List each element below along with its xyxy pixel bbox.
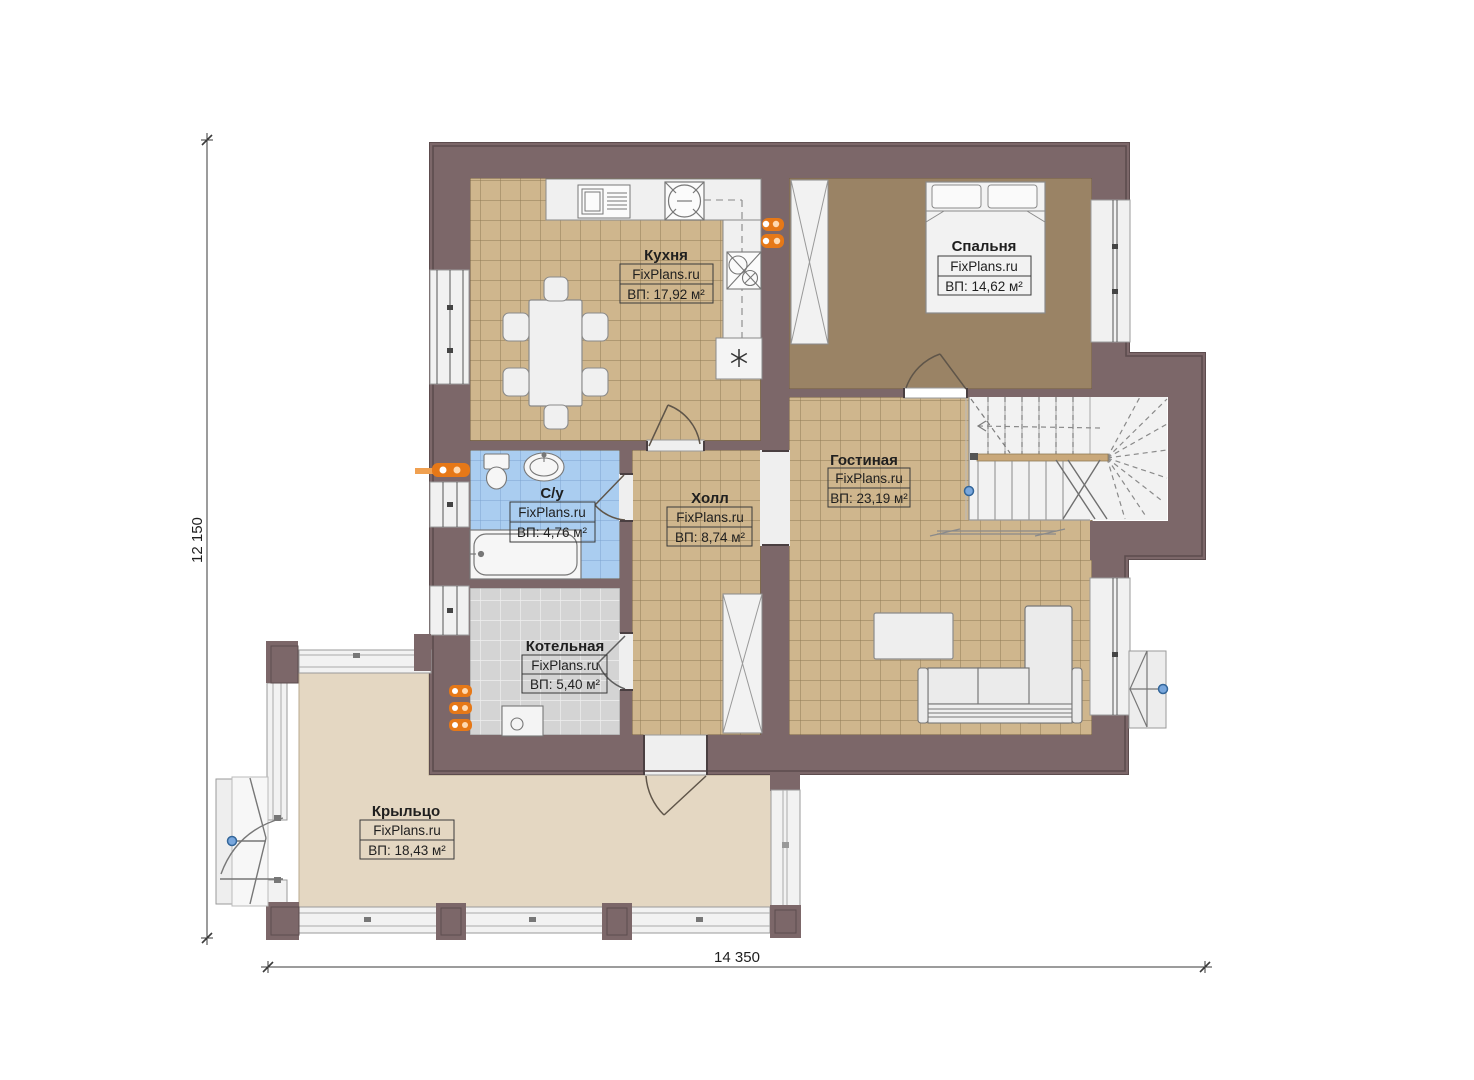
svg-text:FixPlans.ru: FixPlans.ru [518,505,586,520]
svg-text:ВП: 4,76 м²: ВП: 4,76 м² [517,525,588,540]
svg-text:FixPlans.ru: FixPlans.ru [835,471,903,486]
svg-text:FixPlans.ru: FixPlans.ru [531,658,599,673]
svg-text:12 150: 12 150 [189,517,206,563]
svg-text:Крыльцо: Крыльцо [372,803,440,820]
svg-text:ВП: 17,92 м²: ВП: 17,92 м² [627,287,705,302]
svg-text:ВП: 8,74 м²: ВП: 8,74 м² [675,530,746,545]
svg-text:ВП: 18,43 м²: ВП: 18,43 м² [368,843,446,858]
svg-text:FixPlans.ru: FixPlans.ru [676,510,744,525]
svg-text:Холл: Холл [691,490,729,507]
svg-text:С/у: С/у [540,485,564,502]
svg-text:FixPlans.ru: FixPlans.ru [950,259,1018,274]
svg-text:Спальня: Спальня [952,238,1017,255]
svg-text:FixPlans.ru: FixPlans.ru [632,267,700,282]
svg-text:ВП: 14,62 м²: ВП: 14,62 м² [945,279,1023,294]
svg-text:Котельная: Котельная [526,638,605,655]
svg-text:ВП: 23,19 м²: ВП: 23,19 м² [830,491,908,506]
svg-text:Гостиная: Гостиная [830,452,898,469]
svg-text:14 350: 14 350 [714,949,760,966]
svg-text:Кухня: Кухня [644,247,688,264]
svg-text:FixPlans.ru: FixPlans.ru [373,823,441,838]
svg-text:ВП: 5,40 м²: ВП: 5,40 м² [530,677,601,692]
